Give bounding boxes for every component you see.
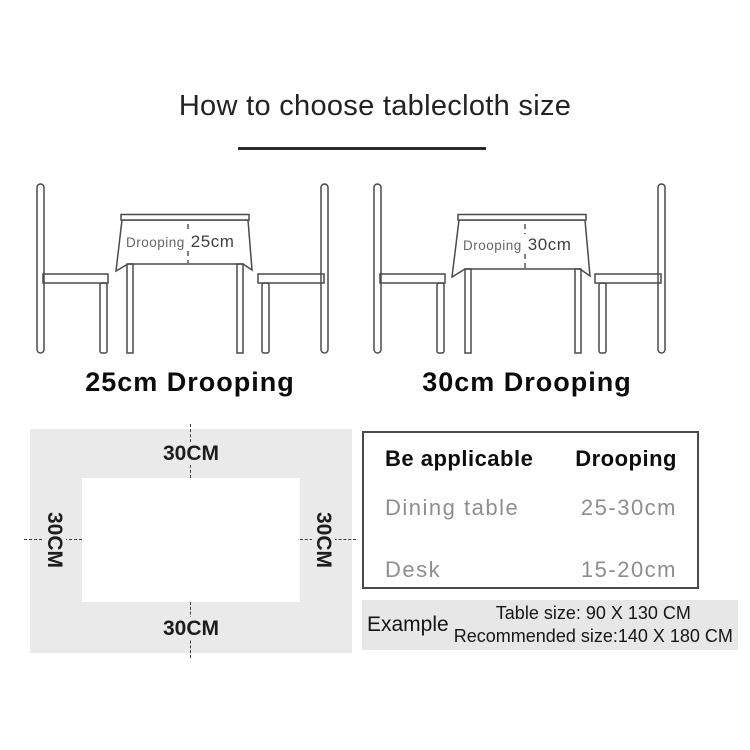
overhang-label-bottom: 30CM <box>160 617 222 640</box>
row-value: 25-30cm <box>581 495 677 521</box>
chair-icon <box>37 184 108 353</box>
example-box: Example Table size: 90 X 130 CM Recommen… <box>362 600 738 650</box>
row-item: Dining table <box>385 495 519 521</box>
example-recommended-size: Recommended size:140 X 180 CM <box>449 625 738 648</box>
chair-icon <box>595 184 665 353</box>
caption-30cm-drooping: 30cm Drooping <box>362 367 692 398</box>
example-table-size: Table size: 90 X 130 CM <box>449 602 738 625</box>
table-with-tablecloth-icon: Drooping25cm <box>116 215 252 354</box>
spec-table-header-row: Be applicable Drooping <box>385 446 677 472</box>
example-label: Example <box>367 613 449 637</box>
header-drooping: Drooping <box>575 446 677 472</box>
drooping-spec-table: Be applicable Drooping Dining table 25-3… <box>362 431 699 589</box>
table-setting-diagram-25cm: Drooping25cm <box>25 176 355 361</box>
caption-25cm-drooping: 25cm Drooping <box>25 367 355 398</box>
row-value: 15-20cm <box>581 557 677 583</box>
title-underline <box>238 147 486 150</box>
overhang-label-left: 30CM <box>43 509 66 571</box>
tablecloth-overhang-diagram: 30CM 30CM 30CM 30CM <box>30 429 352 653</box>
header-be-applicable: Be applicable <box>385 446 533 472</box>
drooping-annotation: Drooping30cm <box>463 235 571 254</box>
page-title: How to choose tablecloth size <box>0 90 750 123</box>
tablecloth-size-infographic: How to choose tablecloth size Drooping25… <box>0 0 750 750</box>
drooping-annotation: Drooping25cm <box>126 232 234 251</box>
chair-icon <box>258 184 328 353</box>
table-row: Desk 15-20cm <box>385 557 677 583</box>
overhang-label-right: 30CM <box>312 509 335 571</box>
table-top-rect <box>82 478 300 602</box>
table-setting-diagram-30cm: Drooping30cm <box>362 176 692 361</box>
overhang-label-top: 30CM <box>160 442 222 465</box>
table-with-tablecloth-icon: Drooping30cm <box>452 215 590 354</box>
example-sizes: Table size: 90 X 130 CM Recommended size… <box>449 602 738 648</box>
row-item: Desk <box>385 557 441 583</box>
chair-icon <box>374 184 445 353</box>
table-row: Dining table 25-30cm <box>385 495 677 521</box>
